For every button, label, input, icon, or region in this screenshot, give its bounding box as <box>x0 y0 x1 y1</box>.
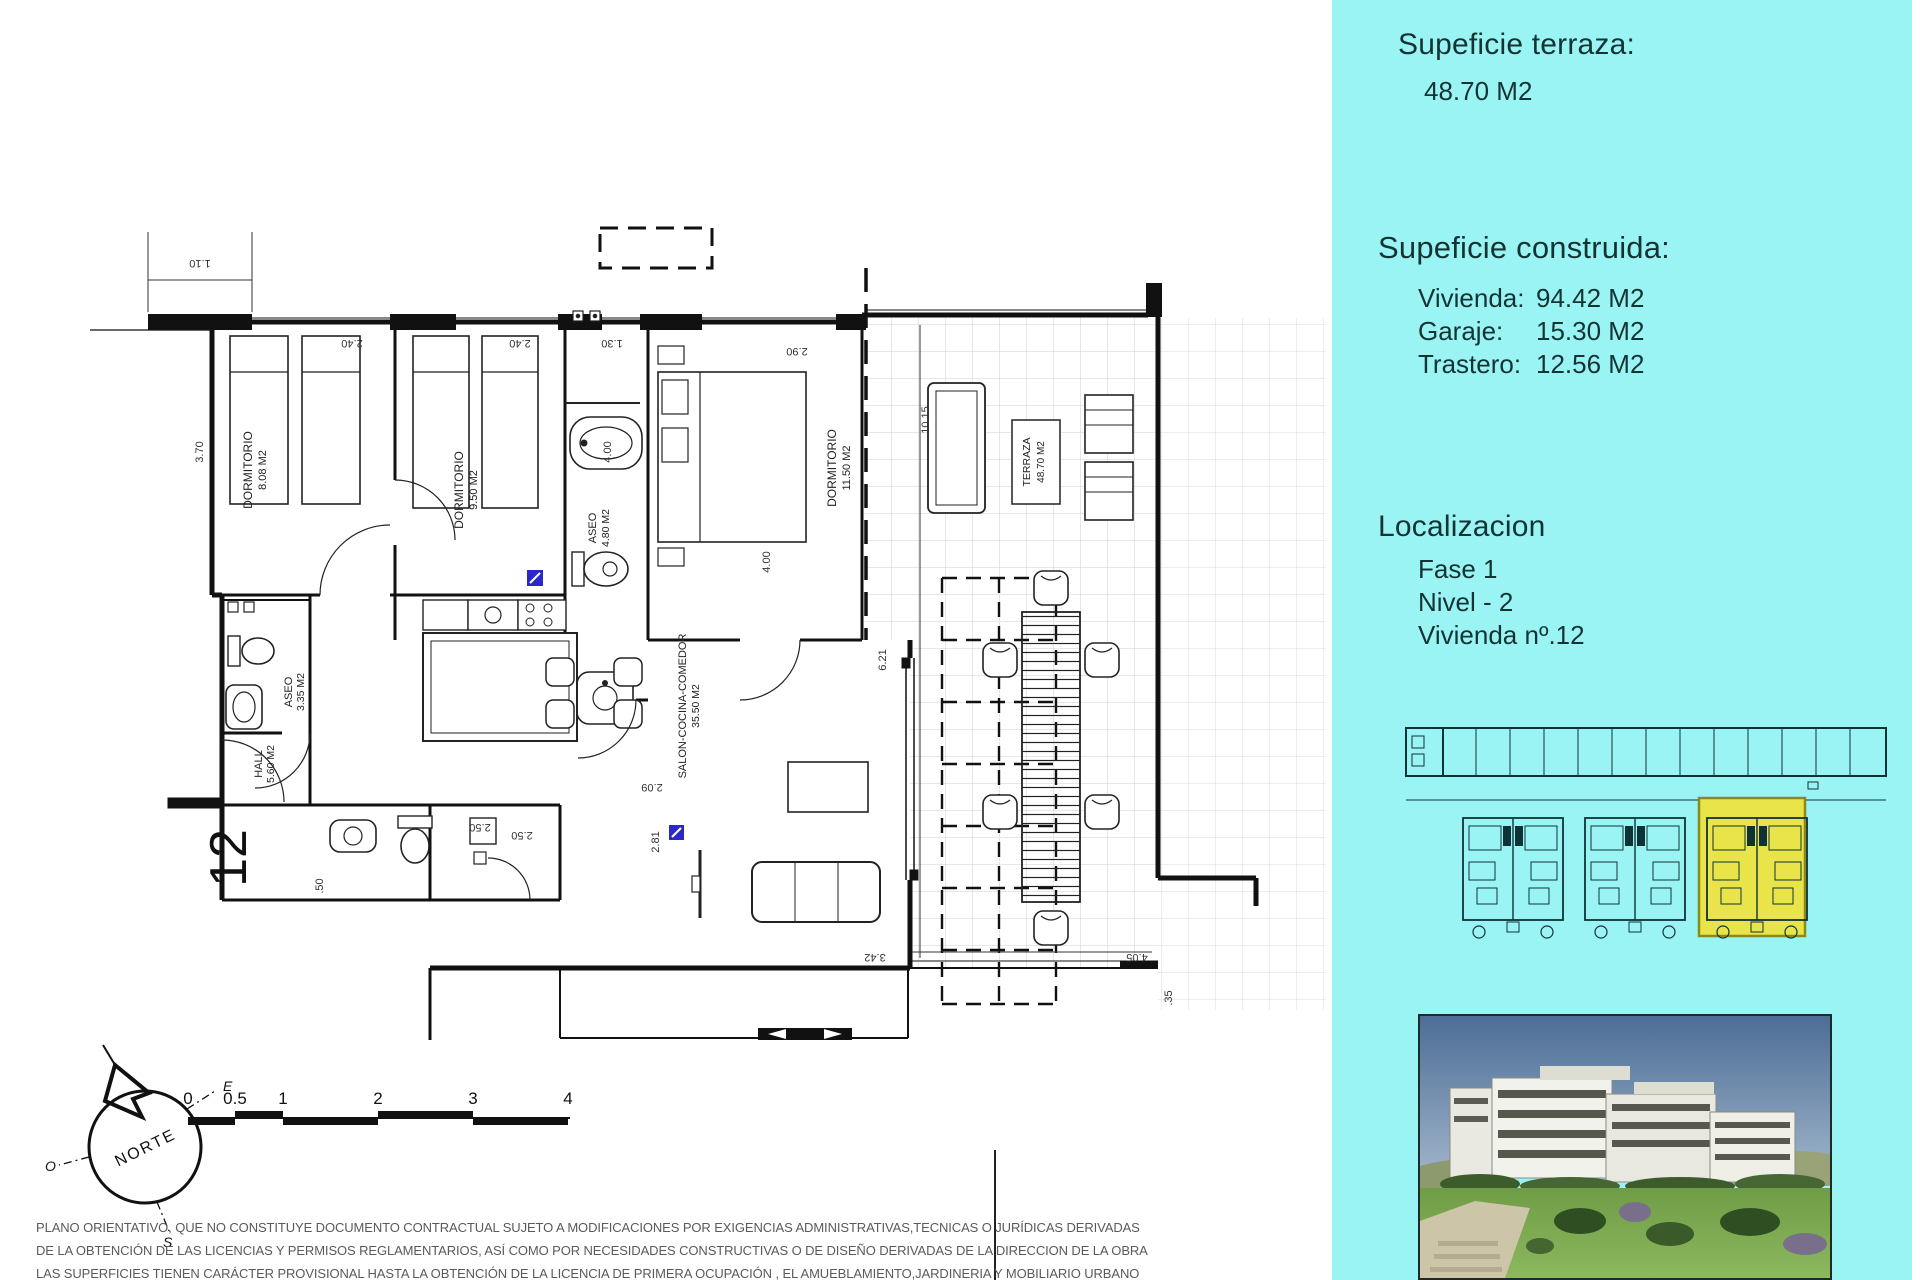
svg-text:0.5: 0.5 <box>223 1089 247 1108</box>
room-terraza-name: TERRAZA <box>1021 437 1033 486</box>
svg-text:6.21: 6.21 <box>877 649 889 670</box>
room-aseo1-name: ASEO <box>283 676 295 707</box>
svg-text:2.50: 2.50 <box>469 821 490 833</box>
location-key-plan <box>1388 722 1908 1012</box>
room-dormitorio3-name: DORMITORIO <box>825 429 839 507</box>
room-hall-name: HALL <box>253 750 265 778</box>
compass-north-label: NORTE <box>112 1126 179 1170</box>
svg-text:1.30: 1.30 <box>601 337 622 349</box>
svg-text:2.40: 2.40 <box>341 337 362 349</box>
disclaimer-line-2: DE LA OBTENCIÓN DE LAS LICENCIAS Y PERMI… <box>36 1243 1021 1258</box>
svg-text:2.40: 2.40 <box>509 337 530 349</box>
floor-plan: DORMITORIO 8.08 M2 DORMITORIO 9.50 M2 DO… <box>0 0 1330 1280</box>
construida-row: Garaje: 15.30 M2 <box>1418 316 1644 347</box>
localizacion-heading: Localizacion <box>1378 510 1546 544</box>
svg-text:.35: .35 <box>1163 990 1175 1005</box>
room-salon-area: 35.50 M2 <box>690 684 702 728</box>
svg-text:1: 1 <box>278 1089 287 1108</box>
room-terraza-area: 48.70 M2 <box>1036 441 1047 483</box>
room-aseo1-area: 3.35 M2 <box>295 673 307 711</box>
terraza-value: 48.70 M2 <box>1424 76 1532 107</box>
construida-heading: Supeficie construida: <box>1378 230 1670 266</box>
disclaimer-line-1: PLANO ORIENTATIVO, QUE NO CONSTITUYE DOC… <box>36 1220 1021 1235</box>
construida-row: Vivienda: 94.42 M2 <box>1418 283 1644 314</box>
svg-text:2.81: 2.81 <box>650 831 662 852</box>
svg-text:2.50: 2.50 <box>511 829 532 841</box>
localizacion-item: Nivel - 2 <box>1418 587 1513 618</box>
svg-text:4: 4 <box>563 1089 572 1108</box>
room-dormitorio1-name: DORMITORIO <box>241 431 255 509</box>
localizacion-item: Fase 1 <box>1418 554 1498 585</box>
room-dormitorio2-area: 9.50 M2 <box>468 470 480 510</box>
svg-text:2: 2 <box>373 1089 382 1108</box>
development-photo <box>1418 1014 1832 1280</box>
room-aseo2-area: 4.80 M2 <box>600 509 612 547</box>
svg-text:4.00: 4.00 <box>761 551 773 572</box>
room-dormitorio3-area: 11.50 M2 <box>841 445 853 490</box>
room-dormitorio2-name: DORMITORIO <box>452 451 466 529</box>
svg-text:1.10: 1.10 <box>189 257 210 269</box>
svg-text:3: 3 <box>468 1089 477 1108</box>
page: DORMITORIO 8.08 M2 DORMITORIO 9.50 M2 DO… <box>0 0 1920 1280</box>
room-aseo2-name: ASEO <box>587 512 599 543</box>
svg-text:2.90: 2.90 <box>786 345 807 357</box>
svg-text:4.00: 4.00 <box>602 441 614 462</box>
svg-text:2.09: 2.09 <box>641 781 662 793</box>
room-salon-name: SALON-COCINA-COMEDOR <box>677 634 689 779</box>
scale-bar: 0 0.5 1 2 3 4 <box>183 1089 572 1125</box>
svg-text:3.70: 3.70 <box>194 441 206 462</box>
construida-row: Trastero: 12.56 M2 <box>1418 349 1644 380</box>
unit-number: 12 <box>200 829 258 887</box>
svg-text:4.05: 4.05 <box>1126 951 1147 963</box>
localizacion-item: Vivienda nº.12 <box>1418 620 1585 651</box>
compass-west-label: O <box>45 1158 56 1174</box>
room-dormitorio1-area: 8.08 M2 <box>257 450 269 490</box>
svg-text:10.15: 10.15 <box>920 406 932 434</box>
svg-text:0: 0 <box>183 1089 192 1108</box>
bottom-sill <box>758 1028 852 1040</box>
room-hall-area: 5.60 M2 <box>265 745 277 783</box>
terraza-heading: Supeficie terraza: <box>1398 28 1635 62</box>
disclaimer-line-3: LAS SUPERFICIES TIENEN CARÁCTER PROVISIO… <box>36 1266 1021 1280</box>
svg-text:.50: .50 <box>314 878 326 893</box>
svg-text:3.42: 3.42 <box>864 951 885 963</box>
